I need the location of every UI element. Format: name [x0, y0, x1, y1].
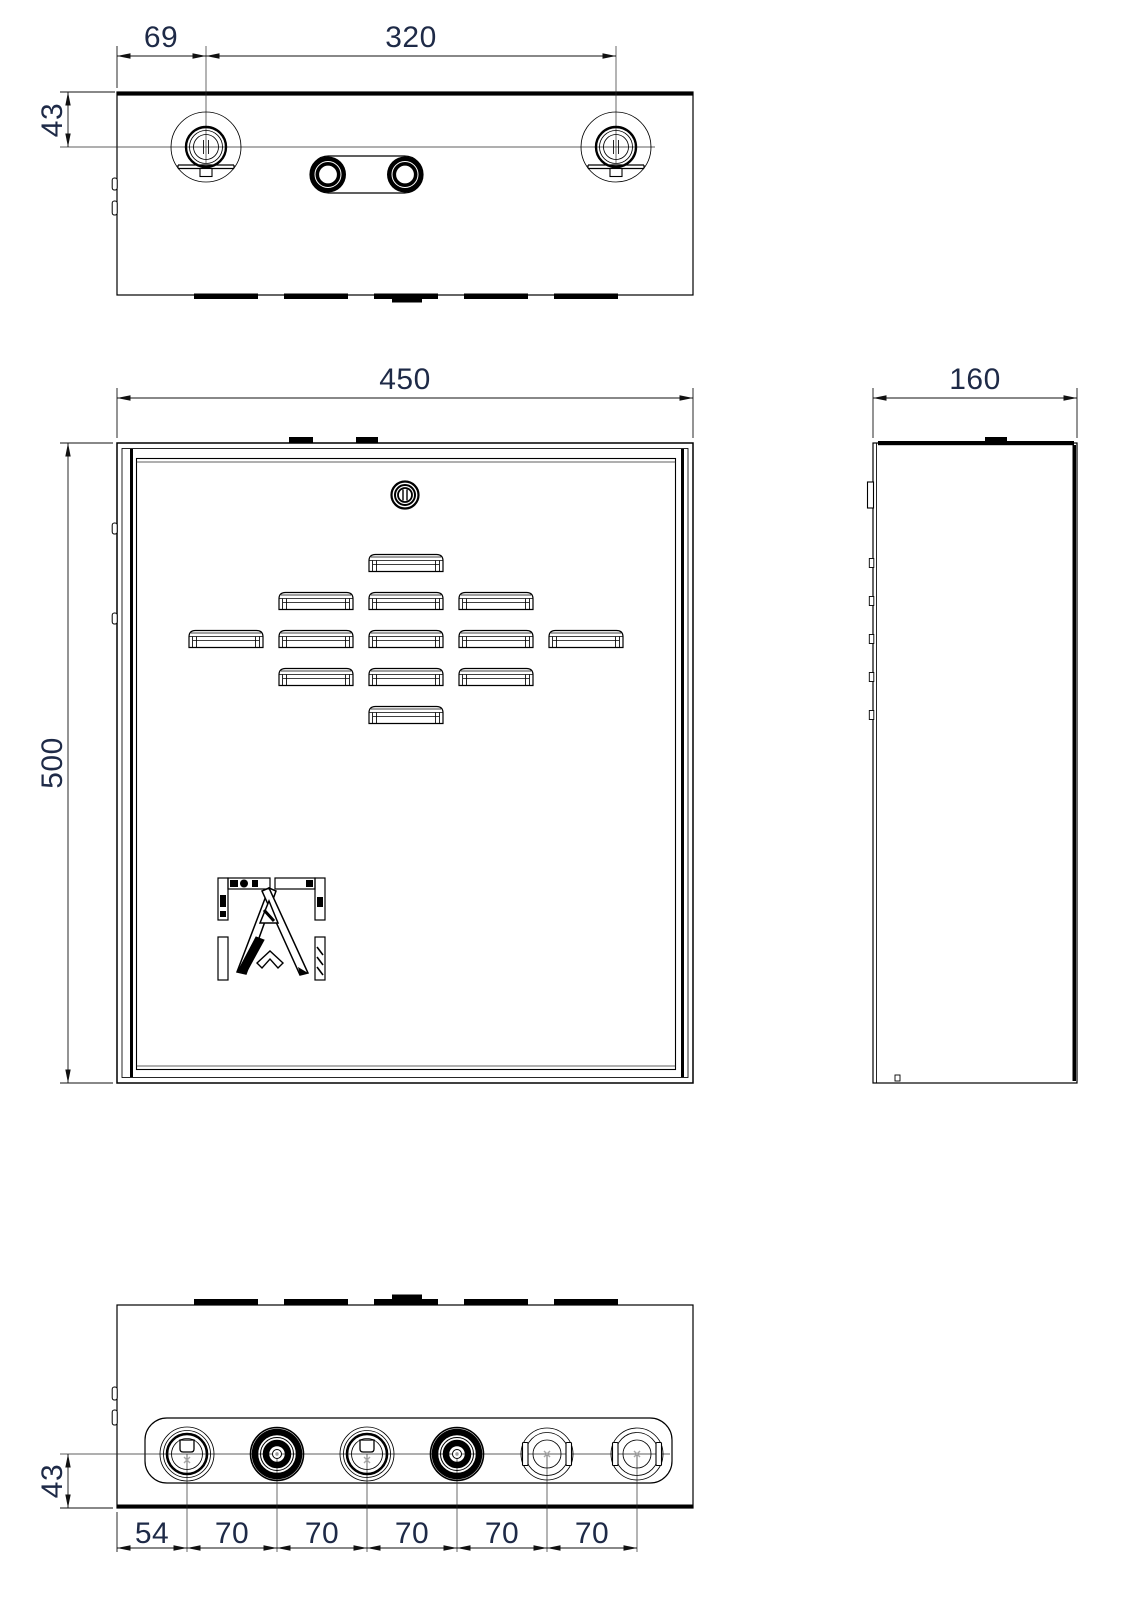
technical-drawing-canvas: 69 320 43 [0, 0, 1132, 1597]
door-panel [137, 459, 676, 1070]
dim-label-69: 69 [144, 21, 178, 54]
front-view [112, 437, 693, 1083]
top-view [60, 46, 693, 303]
dim-label-320: 320 [385, 21, 437, 54]
side-hinge-knuckle [868, 482, 874, 508]
dim-label-54: 54 [135, 1517, 169, 1550]
dimension-top-depth: 43 [36, 92, 115, 147]
dim-label-70-4: 70 [485, 1517, 519, 1550]
dimension-side-depth: 160 [873, 363, 1077, 438]
dim-label-43-top: 43 [36, 103, 69, 137]
bottom-view [60, 1295, 693, 1553]
dimension-front-width: 450 [117, 363, 693, 438]
side-view [868, 437, 1078, 1083]
door-latch-edge [681, 449, 684, 1077]
dimension-front-height: 500 [36, 443, 113, 1083]
dim-label-70-1: 70 [215, 1517, 249, 1550]
top-slot-grommets [310, 156, 423, 193]
gland-plate-recess [145, 1418, 672, 1483]
dim-label-160: 160 [949, 363, 1001, 396]
dim-label-70-2: 70 [305, 1517, 339, 1550]
dimension-bottom-spacing: 54 70 70 70 70 70 [117, 1512, 637, 1552]
bottom-view-edge-tabs [194, 1295, 618, 1306]
drawing-sheet: 69 320 43 [0, 0, 1132, 1597]
dim-label-43-bottom: 43 [36, 1464, 69, 1498]
door-hinge-edge [130, 449, 133, 1077]
top-view-edge-tabs [194, 294, 618, 303]
dim-label-500: 500 [36, 737, 69, 789]
dim-label-70-5: 70 [575, 1517, 609, 1550]
dimension-bottom-height: 43 [36, 1454, 113, 1508]
top-view-back-edge [117, 92, 693, 96]
dim-label-70-3: 70 [395, 1517, 429, 1550]
dimension-top-offset: 69 320 [117, 21, 616, 88]
dim-label-450: 450 [379, 363, 431, 396]
